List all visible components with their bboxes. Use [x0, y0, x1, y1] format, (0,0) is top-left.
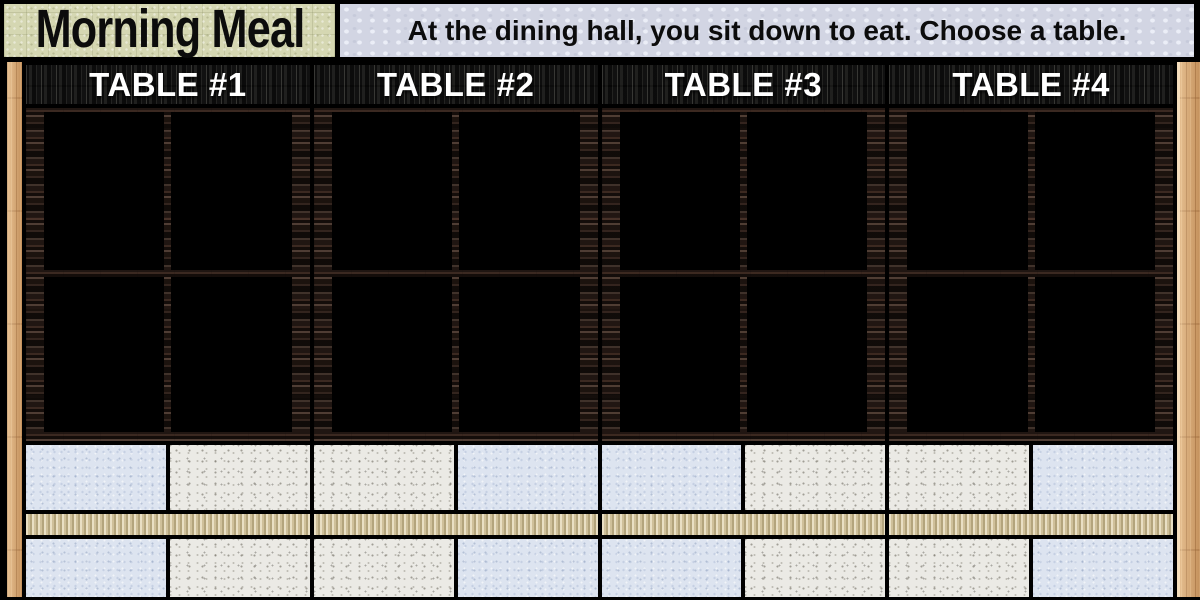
window	[907, 112, 1027, 270]
floor-tile	[602, 445, 742, 510]
table-3-wall	[602, 108, 886, 441]
window	[459, 277, 579, 432]
window	[620, 277, 740, 432]
window	[171, 277, 291, 432]
window	[171, 112, 291, 270]
right-wood-pillar	[1173, 62, 1200, 597]
table-sections: TABLE #1	[26, 62, 1173, 597]
table-1-header: TABLE #1	[26, 62, 310, 108]
floor-tile	[602, 539, 742, 597]
table-option-1[interactable]: TABLE #1	[26, 62, 310, 597]
floor-row	[889, 441, 1173, 510]
instruction-text: At the dining hall, you sit down to eat.…	[408, 15, 1127, 47]
floor-tile	[26, 539, 166, 597]
table-option-2[interactable]: TABLE #2	[314, 62, 598, 597]
window	[332, 277, 452, 432]
floor-row	[314, 539, 598, 597]
floor-row	[889, 539, 1173, 597]
window	[44, 277, 164, 432]
floor-tile	[314, 445, 454, 510]
floor-row	[602, 441, 886, 510]
instruction-box: At the dining hall, you sit down to eat.…	[338, 0, 1200, 62]
bench-strip	[602, 510, 886, 539]
window	[620, 112, 740, 270]
title-box: Morning Meal	[0, 0, 338, 62]
table-3-header: TABLE #3	[602, 62, 886, 108]
dining-hall-scene: TABLE #1	[0, 62, 1200, 600]
window	[747, 277, 867, 432]
window	[747, 112, 867, 270]
table-option-3[interactable]: TABLE #3	[602, 62, 886, 597]
bench-strip	[26, 510, 310, 539]
floor-tile	[170, 539, 310, 597]
floor-row	[314, 441, 598, 510]
floor-tile	[889, 539, 1029, 597]
window	[332, 112, 452, 270]
bench-strip	[889, 510, 1173, 539]
table-4-header: TABLE #4	[889, 62, 1173, 108]
table-1-wall	[26, 108, 310, 441]
floor-tile	[170, 445, 310, 510]
game-screen: Morning Meal At the dining hall, you sit…	[0, 0, 1200, 600]
window	[459, 112, 579, 270]
window	[44, 112, 164, 270]
floor-tile	[458, 539, 598, 597]
table-1-label: TABLE #1	[89, 66, 246, 104]
table-3-label: TABLE #3	[665, 66, 822, 104]
table-4-label: TABLE #4	[952, 66, 1109, 104]
page-title: Morning Meal	[35, 0, 304, 64]
table-2-header: TABLE #2	[314, 62, 598, 108]
window	[907, 277, 1027, 432]
window	[1035, 112, 1155, 270]
floor-tile	[1033, 539, 1173, 597]
floor-tile	[26, 445, 166, 510]
top-bar: Morning Meal At the dining hall, you sit…	[0, 0, 1200, 62]
floor-row	[602, 539, 886, 597]
left-wood-pillar	[0, 62, 26, 597]
floor-row	[26, 441, 310, 510]
floor-row	[26, 539, 310, 597]
table-4-wall	[889, 108, 1173, 441]
floor-tile	[745, 445, 885, 510]
floor-tile	[458, 445, 598, 510]
floor-tile	[889, 445, 1029, 510]
bench-strip	[314, 510, 598, 539]
floor-tile	[1033, 445, 1173, 510]
table-option-4[interactable]: TABLE #4	[889, 62, 1173, 597]
table-2-wall	[314, 108, 598, 441]
floor-tile	[745, 539, 885, 597]
floor-tile	[314, 539, 454, 597]
table-2-label: TABLE #2	[377, 66, 534, 104]
window	[1035, 277, 1155, 432]
